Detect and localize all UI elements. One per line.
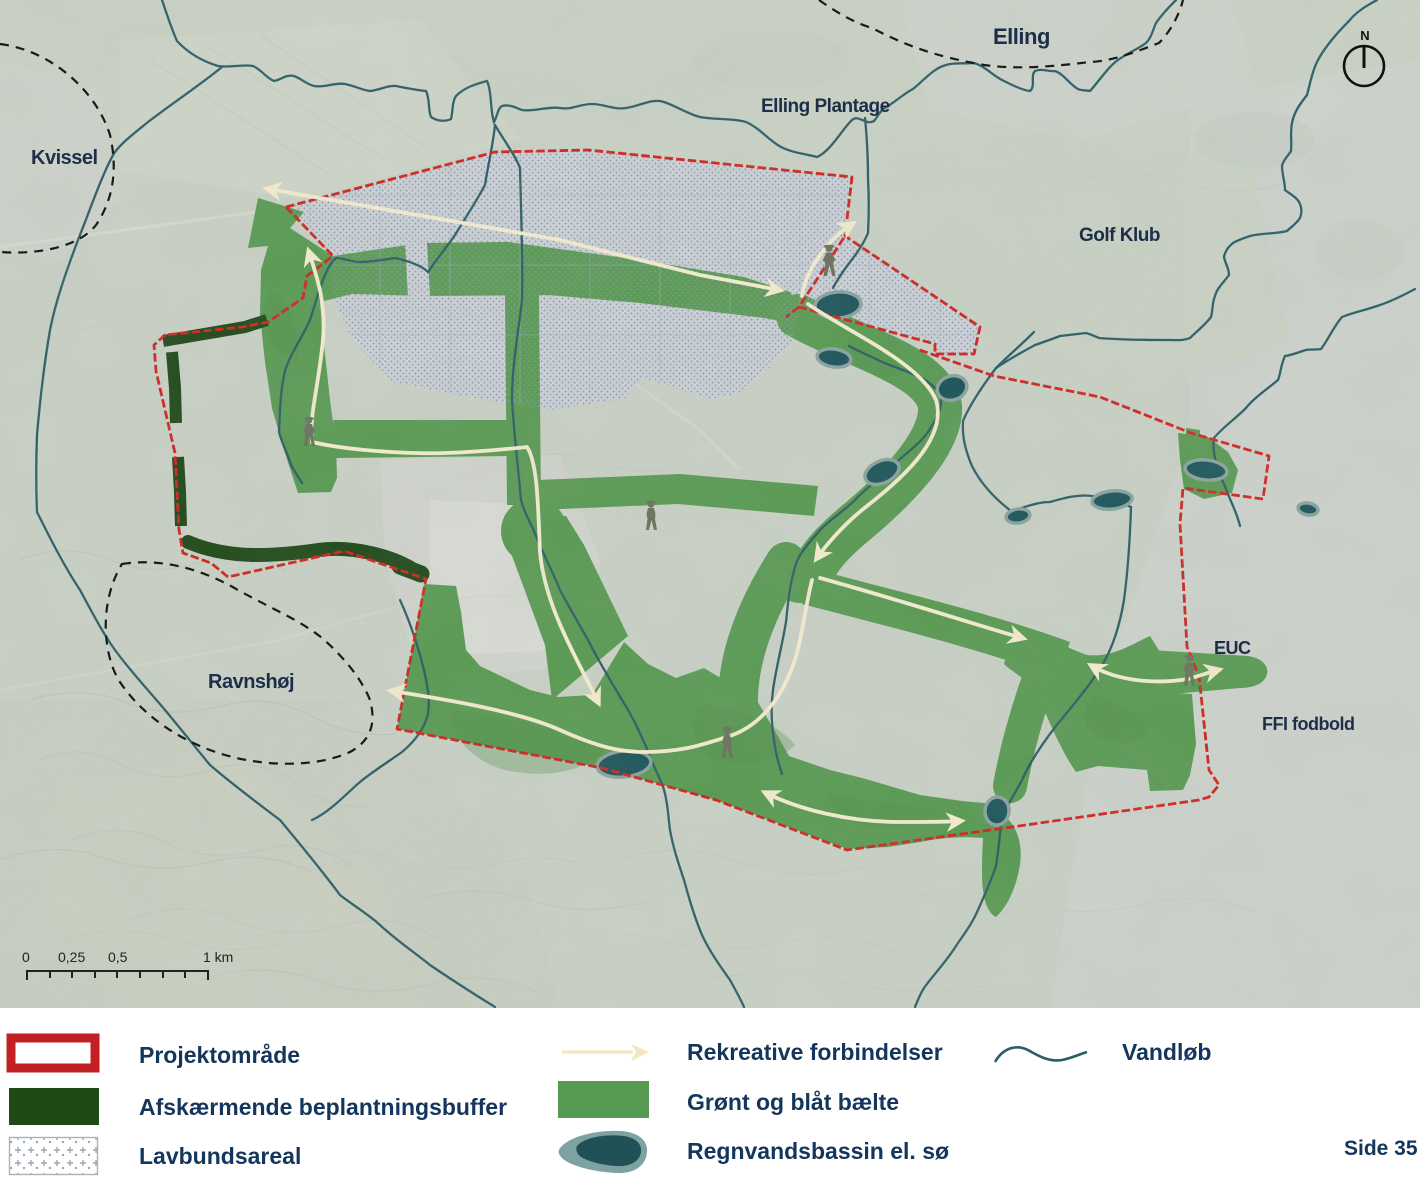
- svg-text:Side 35: Side 35: [1344, 1137, 1418, 1160]
- svg-text:Ravnshøj: Ravnshøj: [208, 671, 294, 693]
- svg-text:Golf Klub: Golf Klub: [1079, 225, 1160, 246]
- svg-text:Rekreative forbindelser: Rekreative forbindelser: [687, 1039, 943, 1065]
- svg-text:0,5: 0,5: [108, 949, 128, 965]
- svg-text:Afskærmende beplantningsbuffer: Afskærmende beplantningsbuffer: [139, 1094, 507, 1120]
- svg-text:Projektområde: Projektområde: [139, 1042, 300, 1068]
- svg-text:N: N: [1360, 28, 1369, 43]
- svg-text:0: 0: [22, 949, 30, 965]
- svg-text:Lavbundsareal: Lavbundsareal: [139, 1143, 301, 1169]
- svg-text:Elling Plantage: Elling Plantage: [761, 96, 890, 117]
- svg-text:EUC: EUC: [1214, 638, 1251, 658]
- svg-text:Regnvandsbassin el. sø: Regnvandsbassin el. sø: [687, 1138, 949, 1164]
- svg-text:Elling: Elling: [993, 24, 1050, 49]
- svg-text:FFI fodbold: FFI fodbold: [1262, 714, 1354, 734]
- svg-text:Grønt og blåt bælte: Grønt og blåt bælte: [687, 1089, 899, 1115]
- svg-text:1 km: 1 km: [203, 949, 233, 965]
- svg-text:Kvissel: Kvissel: [31, 147, 98, 169]
- svg-text:Vandløb: Vandløb: [1122, 1039, 1211, 1065]
- svg-text:0,25: 0,25: [58, 949, 85, 965]
